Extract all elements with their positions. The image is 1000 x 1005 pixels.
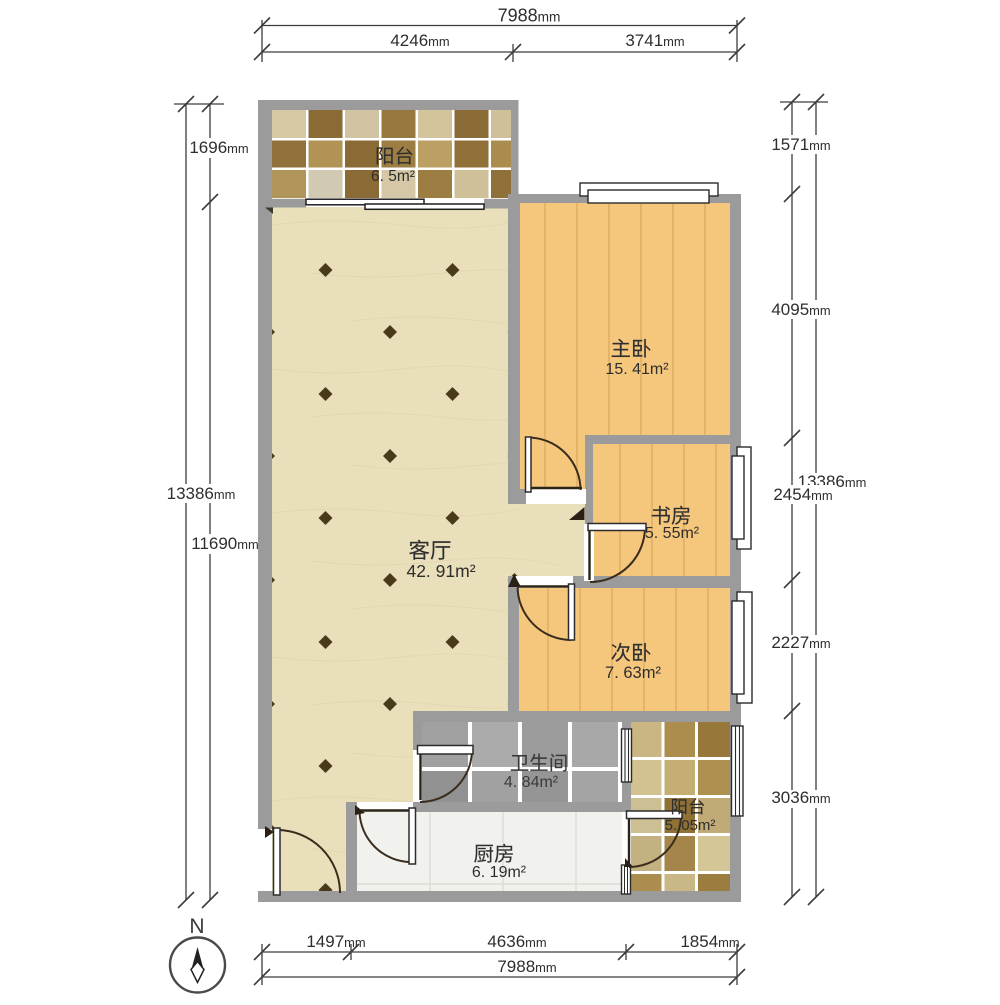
svg-text:1571mm: 1571mm — [771, 135, 830, 154]
svg-text:2227mm: 2227mm — [771, 633, 830, 652]
svg-text:4636mm: 4636mm — [487, 932, 546, 951]
svg-text:1854mm: 1854mm — [680, 932, 739, 951]
svg-text:1696mm: 1696mm — [189, 138, 248, 157]
svg-text:2454mm: 2454mm — [773, 485, 832, 504]
svg-text:11690mm: 11690mm — [191, 534, 259, 553]
svg-text:7988mm: 7988mm — [497, 957, 556, 976]
svg-text:15. 41m²: 15. 41m² — [605, 361, 669, 378]
svg-text:7. 63m²: 7. 63m² — [605, 664, 661, 682]
svg-text:4095mm: 4095mm — [771, 300, 830, 319]
svg-text:6. 19m²: 6. 19m² — [472, 864, 527, 881]
svg-text:4246mm: 4246mm — [390, 31, 449, 50]
svg-text:5. 05m²: 5. 05m² — [665, 817, 716, 834]
svg-text:4. 84m²: 4. 84m² — [504, 774, 559, 791]
svg-text:3036mm: 3036mm — [771, 788, 830, 807]
svg-text:1497mm: 1497mm — [306, 932, 365, 951]
svg-text:13386mm: 13386mm — [167, 484, 236, 503]
svg-text:5. 55m²: 5. 55m² — [645, 525, 700, 542]
svg-text:6. 5m²: 6. 5m² — [371, 168, 415, 185]
svg-text:3741mm: 3741mm — [625, 31, 684, 50]
svg-text:42. 91m²: 42. 91m² — [406, 561, 475, 581]
svg-text:N: N — [189, 915, 204, 938]
